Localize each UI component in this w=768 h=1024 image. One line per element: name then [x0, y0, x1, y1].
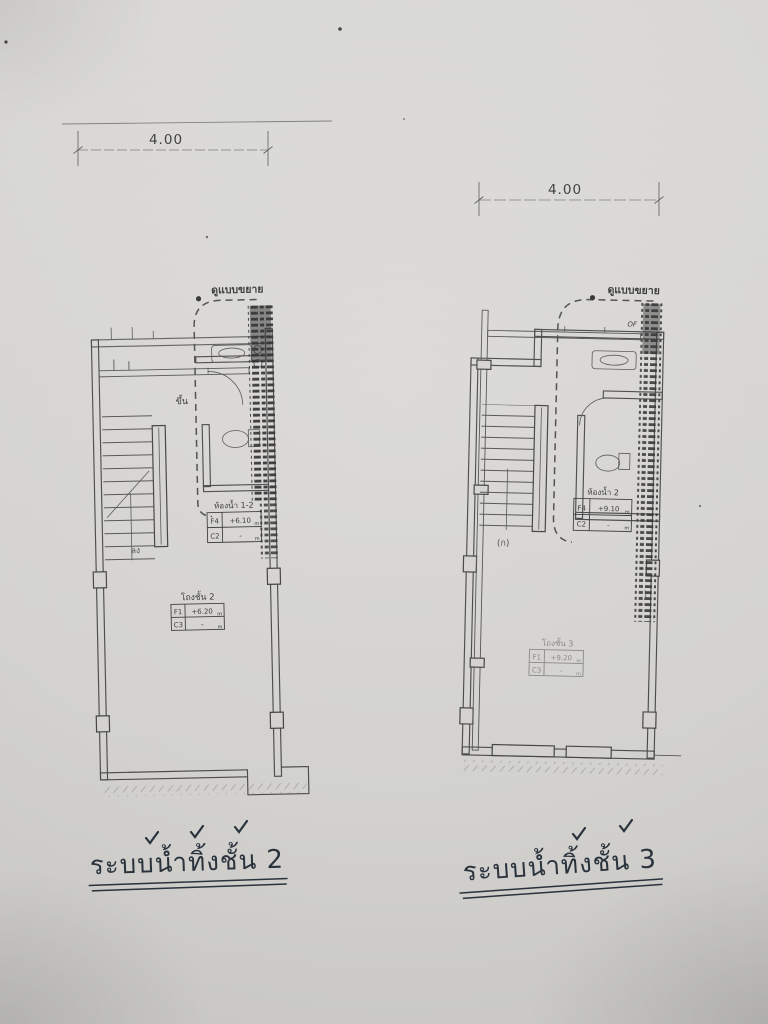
level-code: C2 [210, 532, 220, 540]
level-code: F4 [210, 517, 219, 525]
waste-pipe-floor3 [468, 310, 641, 754]
plan-body-floor2: ดูแบบขยาย [87, 283, 309, 798]
detail-callout-label: ดูแบบขยาย [607, 284, 660, 298]
room-table-title: ห้องน้ำ 2 [587, 486, 619, 498]
plan-floor2: 4.00 ดูแบบขยาย [74, 131, 309, 891]
dimension-value: 4.00 [149, 132, 183, 148]
level-code: C2 [577, 520, 587, 528]
level-unit: m [624, 525, 629, 531]
room-table-hall-floor3: โถงชั้น 3 F1 +9.20 m C3 - m [529, 636, 584, 677]
level-code: F4 [577, 504, 586, 512]
pipe-label: OF [627, 320, 638, 328]
waste-pipe-floor2 [99, 345, 263, 376]
stair-up-label: ขึ้น [176, 394, 189, 407]
level-value: +6.20 [191, 608, 213, 616]
dimension-floor2: 4.00 [74, 131, 273, 166]
stair-down-label: ลง [131, 546, 141, 556]
level-value: +6.10 [229, 517, 251, 525]
level-value: +9.10 [598, 505, 620, 513]
stair-down-label: (ก) [497, 539, 510, 549]
level-unit: m [576, 671, 581, 677]
level-unit: m [625, 509, 630, 515]
scanned-page: 4.00 ดูแบบขยาย [0, 0, 768, 1024]
top-rule-line [62, 121, 332, 124]
plumbing-plan-drawing: 4.00 ดูแบบขยาย [0, 0, 768, 1024]
level-unit: m [254, 521, 259, 527]
pipe-annotations-floor2 [248, 304, 278, 558]
staircase-floor3: (ก) [479, 404, 548, 549]
level-value: - [201, 621, 204, 629]
level-code: C3 [174, 621, 184, 629]
level-value: +9.20 [551, 654, 573, 662]
level-unit: m [576, 658, 581, 664]
room-table-title: ห้องน้ำ 1-2 [214, 499, 254, 511]
level-code: C3 [532, 666, 542, 674]
plan-floor3: 4.00 ดูแบบขยาย [457, 182, 692, 899]
detail-callout-label: ดูแบบขยาย [211, 283, 264, 297]
level-unit: m [217, 624, 222, 630]
level-unit: m [217, 611, 222, 617]
pipe-annotations-floor3: OF [621, 301, 663, 622]
caption-floor2: ระบบน้ำทิ้งชั้น 2 [87, 821, 287, 891]
dimension-value: 4.00 [548, 182, 582, 198]
level-value: - [560, 667, 563, 675]
plan-body-floor3: ดูแบบขยาย [459, 281, 692, 776]
level-code: F1 [174, 608, 183, 616]
caption-text: ระบบน้ำทิ้งชั้น 3 [462, 839, 658, 887]
room-table-hall-floor2: โถงชั้น 2 F1 +6.20 m C3 - m [171, 590, 225, 631]
room-table-title: โถงชั้น 3 [542, 637, 574, 649]
level-code: F1 [532, 653, 541, 661]
caption-text: ระบบน้ำทิ้งชั้น 2 [89, 840, 284, 882]
staircase-floor2: ขึ้น ลง [102, 394, 192, 563]
room-table-title: โถงชั้น 2 [181, 590, 215, 603]
level-value: - [607, 521, 610, 529]
caption-floor3: ระบบน้ำทิ้งชั้น 3 [457, 820, 664, 899]
room-table-bathroom-floor2: ห้องน้ำ 1-2 F4 +6.10 m C2 - m [207, 499, 262, 544]
level-value: - [239, 532, 242, 540]
dimension-floor3: 4.00 [475, 182, 664, 216]
level-unit: m [255, 536, 260, 542]
room-table-bathroom-floor3: ห้องน้ำ 2 F4 +9.10 m C2 - m [573, 485, 632, 531]
